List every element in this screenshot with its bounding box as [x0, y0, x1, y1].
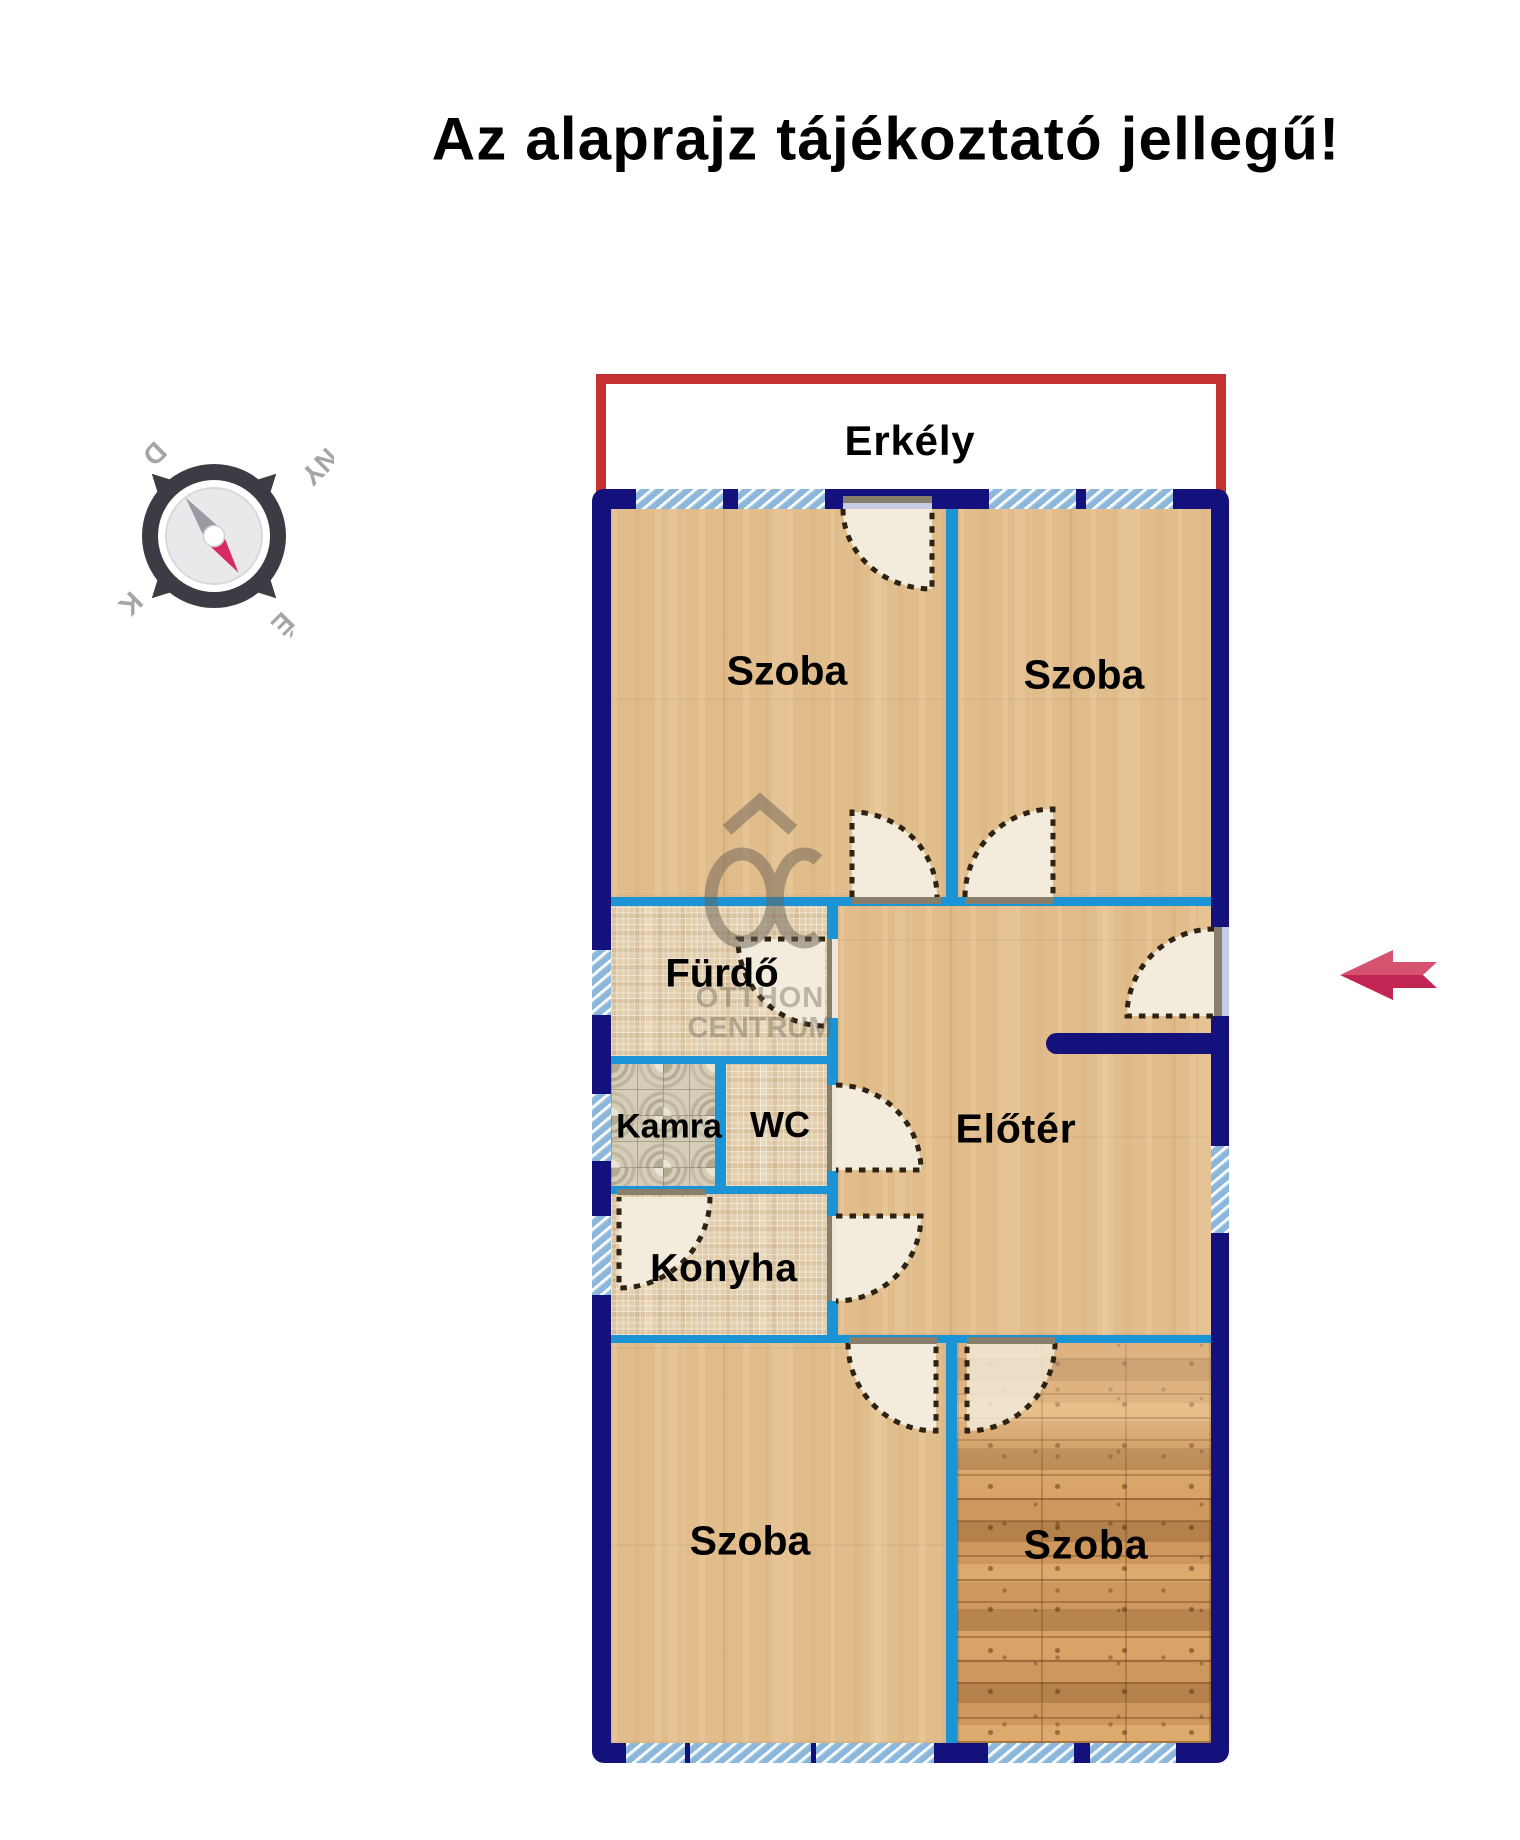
svg-text:CENTRUM: CENTRUM: [688, 1012, 833, 1044]
